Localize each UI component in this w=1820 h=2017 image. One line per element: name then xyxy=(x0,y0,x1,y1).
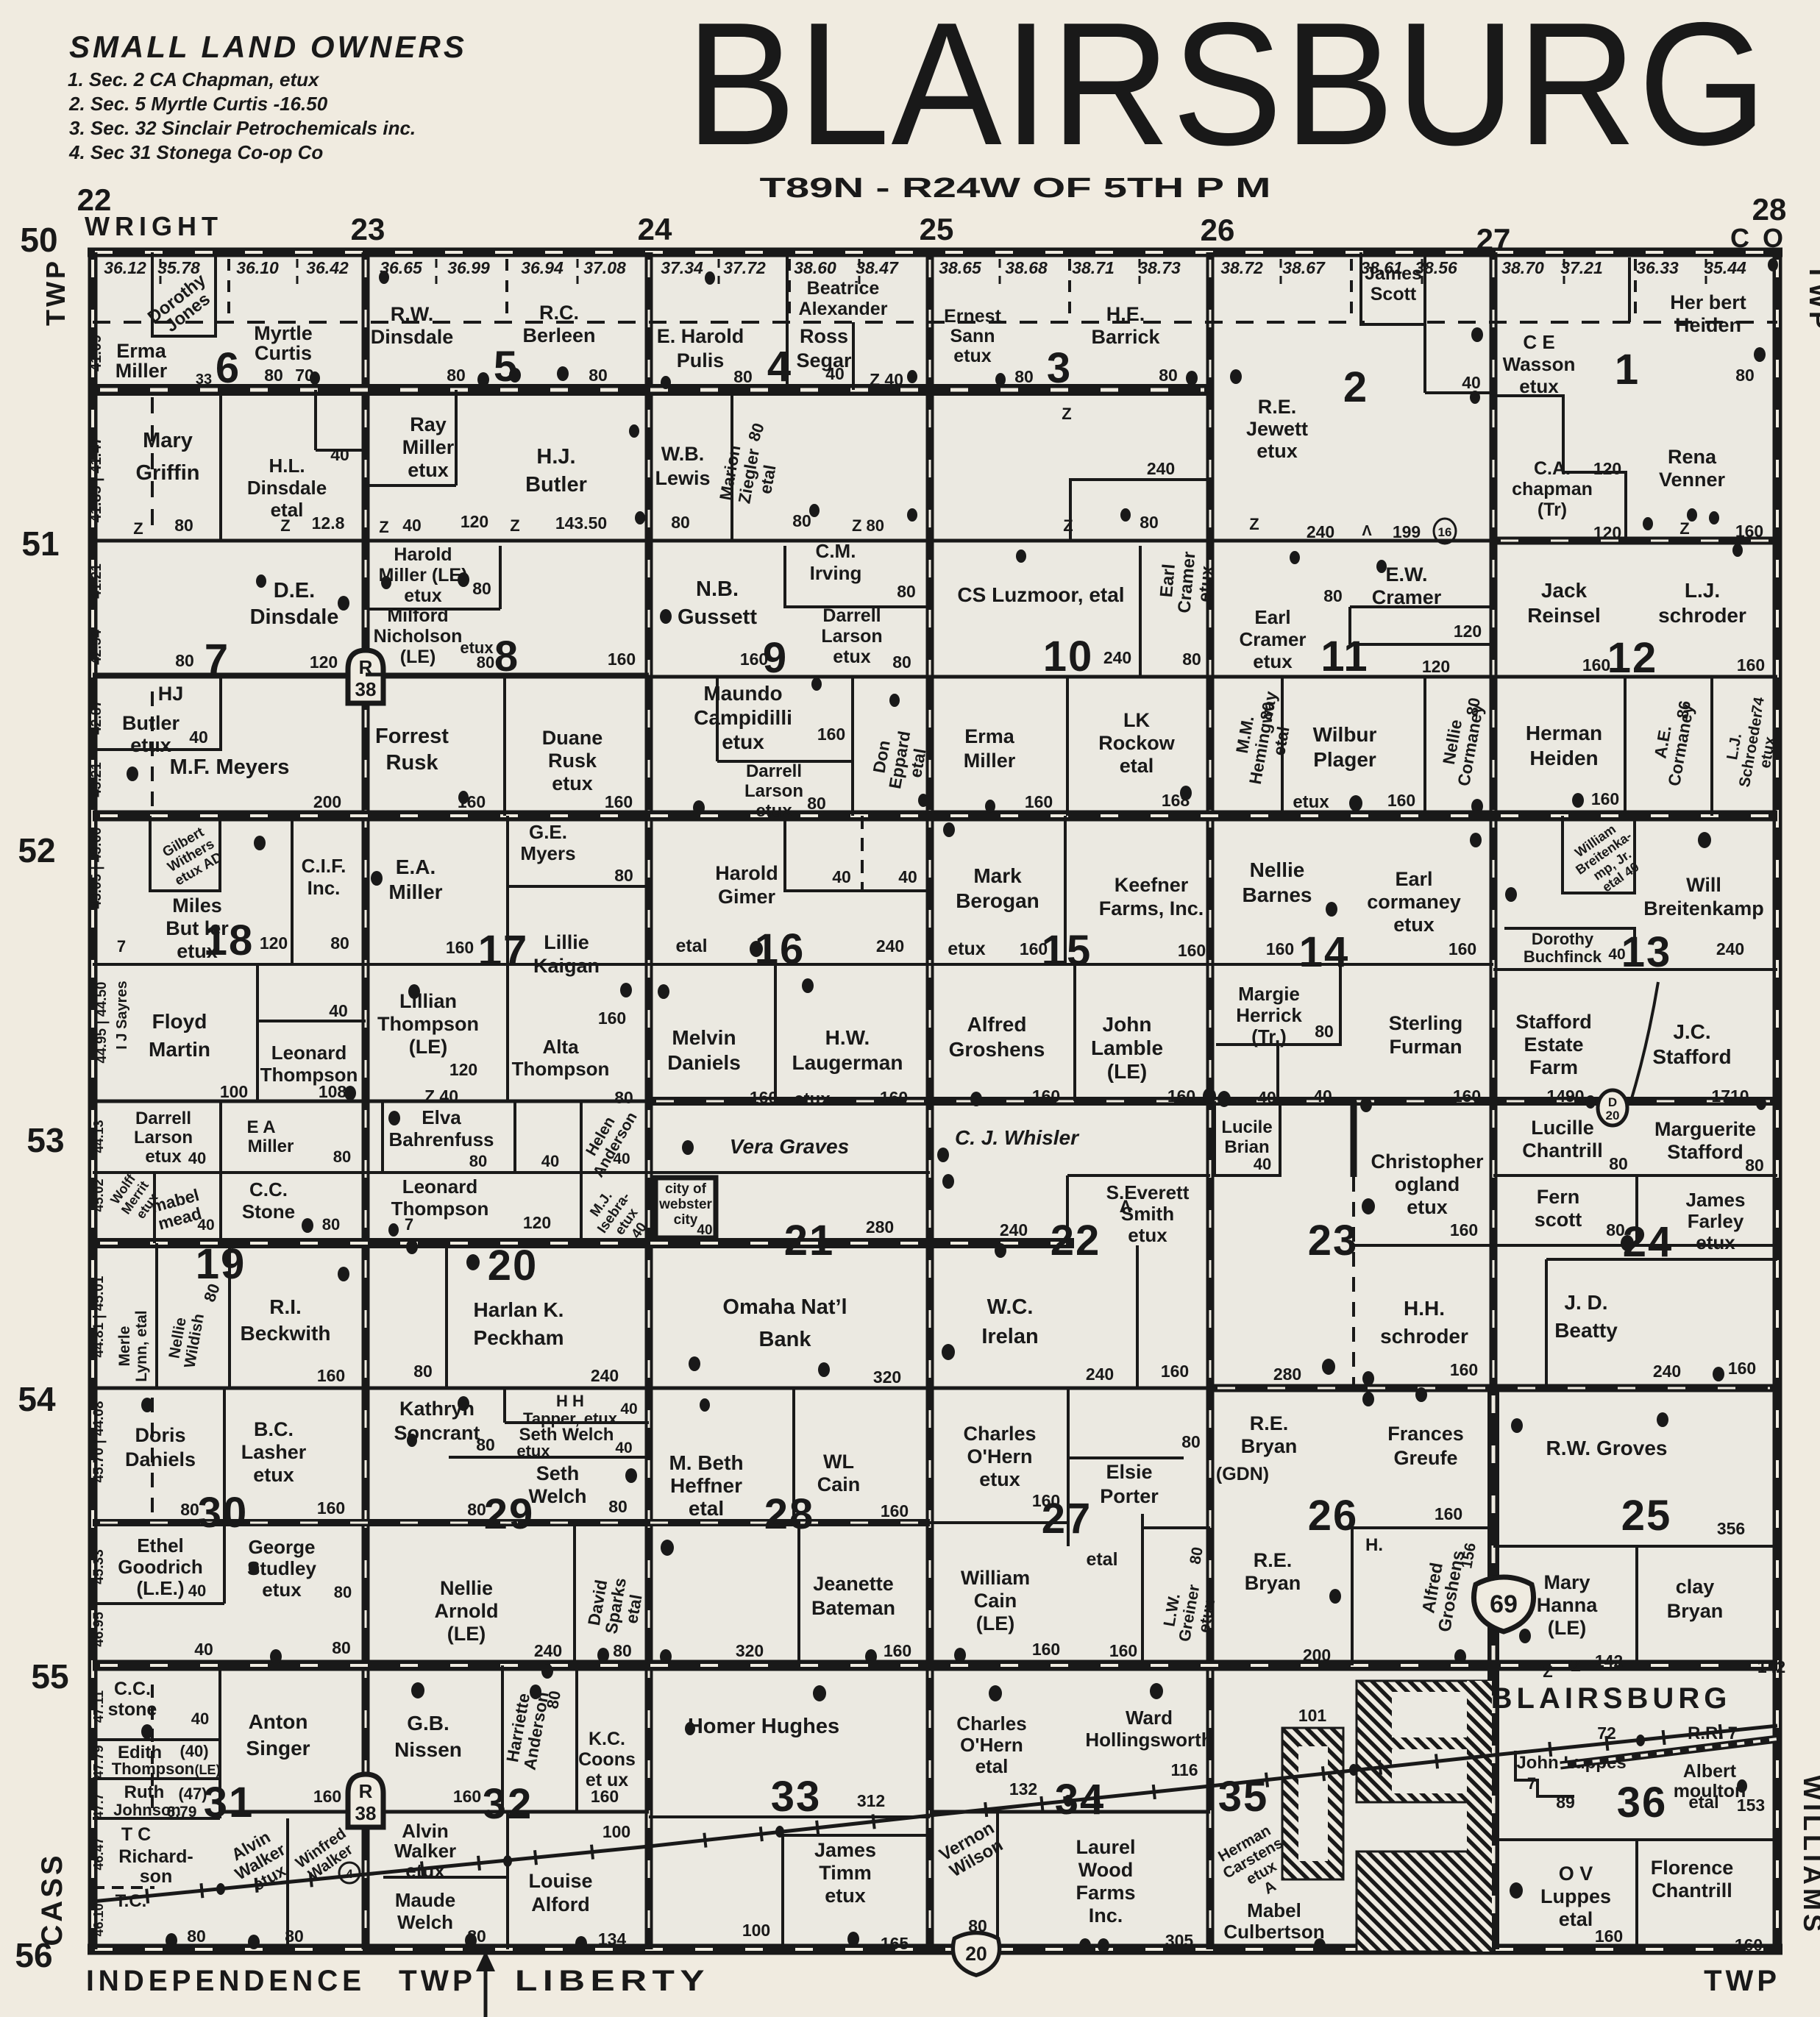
svg-text:Irving: Irving xyxy=(810,562,862,584)
svg-text:80: 80 xyxy=(1323,586,1343,605)
svg-text:47.11: 47.11 xyxy=(91,1690,106,1723)
svg-text:R.E.: R.E. xyxy=(1258,396,1297,418)
svg-text:38.65: 38.65 xyxy=(939,258,982,277)
svg-text:Nicholson: Nicholson xyxy=(374,626,463,647)
svg-text:etal: etal xyxy=(689,1497,724,1520)
svg-text:240: 240 xyxy=(1147,459,1175,478)
svg-text:Furman: Furman xyxy=(1389,1036,1462,1058)
svg-text:52: 52 xyxy=(18,831,55,869)
svg-text:160: 160 xyxy=(1737,655,1765,675)
svg-text:Dinsdale: Dinsdale xyxy=(247,477,327,499)
svg-text:160: 160 xyxy=(880,1088,908,1107)
svg-text:R.E.: R.E. xyxy=(1250,1412,1289,1434)
svg-text:Maude: Maude xyxy=(395,1889,455,1911)
svg-text:142: 142 xyxy=(1757,1657,1785,1676)
svg-text:etux: etux xyxy=(408,459,449,481)
svg-text:38.70: 38.70 xyxy=(1501,258,1544,277)
svg-text:etal: etal xyxy=(1086,1549,1117,1570)
svg-text:160: 160 xyxy=(1178,941,1206,960)
svg-text:etux: etux xyxy=(404,586,442,606)
svg-text:80: 80 xyxy=(1609,1154,1628,1173)
svg-text:INDEPENDENCE: INDEPENDENCE xyxy=(86,1965,366,1997)
svg-text:Bank: Bank xyxy=(759,1328,812,1351)
svg-text:Cain: Cain xyxy=(817,1473,861,1495)
svg-text:CS Luzmoor, etal: CS Luzmoor, etal xyxy=(957,583,1124,606)
svg-text:Alta: Alta xyxy=(542,1036,579,1058)
svg-text:80: 80 xyxy=(1745,1156,1764,1175)
svg-text:Farm: Farm xyxy=(1529,1056,1578,1078)
svg-text:Floyd: Floyd xyxy=(152,1010,207,1033)
svg-text:Stafford: Stafford xyxy=(1652,1045,1731,1068)
svg-text:C.I.F.: C.I.F. xyxy=(302,855,346,877)
svg-text:42.87: 42.87 xyxy=(89,700,104,735)
svg-text:Irelan: Irelan xyxy=(981,1325,1038,1348)
svg-text:webster: webster xyxy=(658,1197,712,1212)
svg-text:T89N - R24W OF 5TH P: T89N - R24W OF 5TH P M xyxy=(760,173,1271,204)
svg-text:Rena: Rena xyxy=(1668,446,1717,468)
svg-text:29: 29 xyxy=(484,1490,535,1538)
svg-text:1. Sec. 2 CA Chapman, etux: 1. Sec. 2 CA Chapman, etux xyxy=(68,68,320,90)
svg-text:45.70 | 44.08: 45.70 | 44.08 xyxy=(91,1401,107,1483)
svg-text:Miller: Miller xyxy=(964,750,1016,772)
svg-text:Barrick: Barrick xyxy=(1091,326,1160,348)
svg-text:120: 120 xyxy=(461,512,488,531)
svg-text:7: 7 xyxy=(405,1215,413,1234)
svg-text:5: 5 xyxy=(494,343,519,391)
svg-text:schroder: schroder xyxy=(1658,604,1746,627)
svg-text:Harlan K.: Harlan K. xyxy=(474,1298,564,1321)
svg-text:40: 40 xyxy=(898,867,917,886)
svg-text:(GDN): (GDN) xyxy=(1216,1464,1269,1484)
svg-text:41.85 | 41.47: 41.85 | 41.47 xyxy=(88,437,104,523)
svg-text:Her bert: Her bert xyxy=(1670,291,1746,313)
svg-text:etux: etux xyxy=(1519,375,1559,397)
svg-text:3: 3 xyxy=(1047,344,1072,392)
svg-text:38.47: 38.47 xyxy=(856,258,899,277)
svg-text:R.I.: R.I. xyxy=(269,1295,302,1318)
svg-text:55: 55 xyxy=(31,1657,68,1696)
svg-text:160: 160 xyxy=(1435,1504,1462,1523)
svg-text:80: 80 xyxy=(322,1215,340,1234)
svg-text:160: 160 xyxy=(1591,789,1619,808)
svg-text:100: 100 xyxy=(602,1822,630,1841)
svg-text:50: 50 xyxy=(20,221,57,259)
svg-text:Fern: Fern xyxy=(1537,1186,1580,1208)
svg-text:Myrtle: Myrtle xyxy=(254,322,313,344)
svg-text:160: 160 xyxy=(1161,1362,1189,1381)
svg-text:35.44: 35.44 xyxy=(1704,258,1746,277)
svg-text:160: 160 xyxy=(446,938,474,957)
svg-text:James: James xyxy=(1686,1189,1746,1211)
svg-text:1: 1 xyxy=(1615,346,1640,394)
svg-text:R.W.: R.W. xyxy=(391,303,434,325)
svg-text:16: 16 xyxy=(1438,525,1452,539)
svg-text:B.C.: B.C. xyxy=(254,1418,294,1440)
svg-text:280: 280 xyxy=(1273,1365,1301,1384)
svg-text:17: 17 xyxy=(478,927,529,975)
svg-text:80: 80 xyxy=(807,794,826,813)
svg-text:40: 40 xyxy=(188,1149,206,1167)
svg-text:TWP: TWP xyxy=(1704,1965,1780,1997)
svg-text:Harold: Harold xyxy=(394,544,452,565)
svg-text:Z: Z xyxy=(1249,515,1259,533)
svg-text:SMALL LAND OWNERS: SMALL LAND OWNERS xyxy=(69,29,467,64)
svg-text:80: 80 xyxy=(1315,1022,1334,1041)
svg-text:Stafford: Stafford xyxy=(1667,1141,1743,1163)
svg-text:44.95 | 44.50: 44.95 | 44.50 xyxy=(94,982,110,1064)
svg-text:Bryan: Bryan xyxy=(1667,1600,1724,1622)
svg-text:Heffner: Heffner xyxy=(670,1474,742,1497)
svg-text:HJ: HJ xyxy=(158,683,184,705)
svg-text:Walker: Walker xyxy=(394,1840,456,1862)
svg-text:Estate: Estate xyxy=(1524,1034,1583,1056)
svg-text:Lynn, etal: Lynn, etal xyxy=(133,1310,150,1381)
svg-text:Lillie: Lillie xyxy=(544,931,589,953)
svg-text:Merle: Merle xyxy=(116,1326,133,1367)
svg-text:36.94: 36.94 xyxy=(521,258,564,277)
svg-text:E. Harold: E. Harold xyxy=(657,325,744,347)
svg-text:80: 80 xyxy=(543,1689,564,1710)
svg-text:40: 40 xyxy=(832,867,851,886)
svg-text:Scott: Scott xyxy=(1371,284,1417,305)
svg-text:H.L.: H.L. xyxy=(269,455,305,477)
svg-text:89: 89 xyxy=(1556,1793,1575,1812)
svg-text:2. Sec. 5 Myrtle Curtis -16.5: 2. Sec. 5 Myrtle Curtis -16.50 xyxy=(68,93,328,115)
svg-text:Lucile: Lucile xyxy=(1221,1117,1272,1137)
svg-text:Earl: Earl xyxy=(1395,868,1432,890)
svg-text:37.72: 37.72 xyxy=(723,258,766,277)
svg-text:Wasson: Wasson xyxy=(1503,353,1576,375)
svg-text:Z: Z xyxy=(1679,519,1689,538)
svg-text:Berleen: Berleen xyxy=(522,324,595,346)
svg-text:Marguerite: Marguerite xyxy=(1654,1118,1756,1140)
svg-text:160: 160 xyxy=(1167,1086,1195,1106)
svg-text:41.09: 41.09 xyxy=(88,335,104,371)
svg-text:40: 40 xyxy=(541,1152,559,1170)
svg-text:40: 40 xyxy=(191,1710,209,1728)
svg-text:108: 108 xyxy=(319,1082,347,1101)
svg-text:Breitenkamp: Breitenkamp xyxy=(1643,897,1764,919)
svg-text:C.A.: C.A. xyxy=(1534,458,1571,479)
svg-text:H.: H. xyxy=(1365,1535,1383,1555)
svg-text:36.10: 36.10 xyxy=(236,258,279,277)
svg-text:scott: scott xyxy=(1535,1209,1582,1231)
svg-text:etux: etux xyxy=(948,939,986,959)
svg-text:200: 200 xyxy=(1303,1646,1331,1665)
svg-text:24: 24 xyxy=(638,212,672,246)
svg-text:80: 80 xyxy=(1462,696,1484,716)
svg-text:Bahrenfuss: Bahrenfuss xyxy=(388,1128,494,1150)
svg-text:80: 80 xyxy=(476,1435,495,1454)
svg-text:Sterling: Sterling xyxy=(1389,1012,1463,1034)
svg-text:etux: etux xyxy=(979,1468,1020,1490)
svg-text:Harold: Harold xyxy=(715,862,778,884)
svg-text:36.12: 36.12 xyxy=(104,258,146,277)
svg-text:Heiden: Heiden xyxy=(1675,314,1741,336)
svg-text:25: 25 xyxy=(920,212,954,246)
svg-text:Wilbur: Wilbur xyxy=(1313,723,1377,746)
svg-text:80: 80 xyxy=(1181,1432,1201,1451)
svg-text:19: 19 xyxy=(196,1240,246,1288)
svg-text:4. Sec 31 Stonega Co-op Co: 4. Sec 31 Stonega Co-op Co xyxy=(68,141,323,163)
svg-text:Farms: Farms xyxy=(1076,1882,1135,1904)
svg-text:120: 120 xyxy=(1422,657,1450,676)
svg-text:160: 160 xyxy=(1595,1927,1623,1946)
svg-text:Inc.: Inc. xyxy=(1089,1904,1123,1927)
svg-text:160: 160 xyxy=(881,1501,909,1520)
svg-text:240: 240 xyxy=(591,1366,619,1385)
svg-text:80: 80 xyxy=(175,651,194,670)
svg-text:80: 80 xyxy=(469,1152,487,1170)
svg-text:Groshens: Groshens xyxy=(949,1038,1045,1061)
svg-text:BLAIRSBURG: BLAIRSBURG xyxy=(686,0,1769,182)
svg-text:city of: city of xyxy=(665,1181,707,1197)
svg-text:160: 160 xyxy=(1735,1935,1763,1954)
svg-text:etux: etux xyxy=(552,772,593,794)
svg-text:Jack: Jack xyxy=(1541,579,1588,602)
svg-text:116: 116 xyxy=(1170,1760,1198,1779)
svg-text:40: 40 xyxy=(620,1401,637,1417)
svg-text:160: 160 xyxy=(884,1641,911,1660)
svg-text:N.B.: N.B. xyxy=(696,577,739,601)
svg-text:80: 80 xyxy=(477,653,494,672)
svg-text:etal: etal xyxy=(1120,755,1154,777)
svg-text:I J Sayres: I J Sayres xyxy=(114,981,130,1049)
svg-text:40: 40 xyxy=(189,728,208,747)
svg-text:Miller: Miller xyxy=(248,1136,294,1156)
svg-text:Porter: Porter xyxy=(1100,1485,1159,1507)
svg-text:80: 80 xyxy=(1256,700,1278,721)
svg-text:Ethel: Ethel xyxy=(137,1534,184,1557)
svg-text:120: 120 xyxy=(1454,622,1482,641)
svg-text:chapman: chapman xyxy=(1512,479,1593,499)
svg-text:160: 160 xyxy=(1728,1359,1756,1378)
svg-text:27: 27 xyxy=(1042,1495,1092,1543)
svg-text:Thompson: Thompson xyxy=(377,1013,479,1035)
svg-text:160: 160 xyxy=(1109,1641,1137,1660)
svg-text:C E: C E xyxy=(1523,331,1554,353)
svg-text:Culbertson: Culbertson xyxy=(1223,1921,1324,1943)
svg-text:20: 20 xyxy=(1606,1109,1620,1123)
svg-text:Larson: Larson xyxy=(134,1128,193,1148)
svg-text:Lillian: Lillian xyxy=(399,990,457,1012)
svg-text:312: 312 xyxy=(857,1791,885,1810)
svg-text:Anton: Anton xyxy=(249,1710,308,1733)
svg-text:160: 160 xyxy=(1735,522,1763,541)
svg-text:38.72: 38.72 xyxy=(1220,258,1263,277)
svg-text:Miles: Miles xyxy=(172,894,222,917)
svg-text:1710: 1710 xyxy=(1711,1086,1749,1106)
svg-text:schroder: schroder xyxy=(1380,1325,1468,1348)
svg-text:Goodrich: Goodrich xyxy=(118,1556,203,1578)
svg-text:Omaha Natʼl: Omaha Natʼl xyxy=(722,1295,847,1319)
svg-text:36: 36 xyxy=(1617,1779,1668,1826)
svg-text:(L.E.): (L.E.) xyxy=(137,1577,185,1599)
svg-text:Bateman: Bateman xyxy=(811,1597,895,1619)
svg-text:160: 160 xyxy=(317,1366,345,1385)
svg-text:80: 80 xyxy=(413,1362,433,1381)
svg-text:Nellie: Nellie xyxy=(440,1577,493,1599)
svg-text:(Tr): (Tr) xyxy=(1538,499,1567,520)
svg-text:Luppes: Luppes xyxy=(1540,1885,1611,1907)
svg-text:Barnes: Barnes xyxy=(1243,883,1312,906)
svg-text:36.99: 36.99 xyxy=(447,258,490,277)
svg-text:Darrell: Darrell xyxy=(822,605,881,626)
svg-text:Farley: Farley xyxy=(1688,1210,1744,1232)
svg-text:45.33: 45.33 xyxy=(91,1549,107,1584)
svg-text:Earl: Earl xyxy=(1254,606,1290,628)
svg-text:H H: H H xyxy=(556,1392,584,1410)
svg-text:Chantrill: Chantrill xyxy=(1652,1879,1732,1902)
svg-text:240: 240 xyxy=(1103,648,1131,667)
svg-text:40: 40 xyxy=(613,1150,630,1167)
svg-text:40: 40 xyxy=(1254,1155,1271,1173)
svg-text:Reinsel: Reinsel xyxy=(1527,604,1601,627)
svg-text:38.73: 38.73 xyxy=(1138,258,1181,277)
svg-text:100: 100 xyxy=(220,1082,248,1101)
svg-text:165: 165 xyxy=(881,1934,909,1953)
svg-text:305: 305 xyxy=(1165,1931,1194,1950)
svg-text:38: 38 xyxy=(355,678,377,700)
svg-text:Mark: Mark xyxy=(973,864,1022,887)
svg-text:80: 80 xyxy=(671,513,690,532)
svg-text:etux: etux xyxy=(145,1147,182,1167)
svg-text:Plager: Plager xyxy=(1313,748,1376,771)
svg-text:356: 356 xyxy=(1717,1519,1745,1538)
svg-text:40: 40 xyxy=(197,1217,214,1234)
svg-text:etux: etux xyxy=(253,1464,294,1486)
svg-text:Λ: Λ xyxy=(1120,1197,1131,1217)
svg-text:M.F. Meyers: M.F. Meyers xyxy=(170,755,290,779)
svg-text:stone: stone xyxy=(108,1699,157,1720)
svg-text:Jeanette: Jeanette xyxy=(813,1573,894,1595)
svg-text:120: 120 xyxy=(449,1060,477,1079)
svg-text:Z: Z xyxy=(1543,1662,1552,1681)
svg-text:54: 54 xyxy=(18,1380,56,1418)
svg-text:clay: clay xyxy=(1676,1576,1715,1598)
svg-text:80: 80 xyxy=(892,652,911,672)
svg-text:Lucille: Lucille xyxy=(1531,1117,1594,1139)
svg-text:Gussett: Gussett xyxy=(678,605,757,629)
svg-text:Darrell: Darrell xyxy=(746,761,802,781)
svg-text:George: George xyxy=(248,1536,315,1558)
svg-text:160: 160 xyxy=(1032,1086,1060,1106)
svg-text:Stafford: Stafford xyxy=(1515,1011,1592,1033)
svg-text:38.60: 38.60 xyxy=(794,258,836,277)
svg-text:40: 40 xyxy=(188,1582,206,1600)
svg-text:Larson: Larson xyxy=(821,626,882,647)
svg-text:80: 80 xyxy=(1187,1545,1206,1565)
svg-text:Myers: Myers xyxy=(520,842,575,864)
svg-text:36.42: 36.42 xyxy=(306,258,349,277)
svg-text:Will: Will xyxy=(1686,874,1721,896)
svg-text:80: 80 xyxy=(472,579,491,598)
svg-text:James: James xyxy=(814,1839,876,1861)
svg-text:cormaney: cormaney xyxy=(1367,891,1461,913)
svg-text:Laurel: Laurel xyxy=(1076,1836,1135,1858)
svg-text:240: 240 xyxy=(876,936,904,956)
svg-text:160: 160 xyxy=(1450,1360,1478,1379)
svg-text:40: 40 xyxy=(825,364,845,383)
svg-text:Dinsdale: Dinsdale xyxy=(371,326,454,348)
svg-text:120: 120 xyxy=(523,1213,551,1232)
svg-text:13: 13 xyxy=(1621,928,1672,976)
svg-text:Z 80: Z 80 xyxy=(852,516,884,535)
svg-text:7: 7 xyxy=(205,636,230,683)
svg-text:Coons: Coons xyxy=(578,1749,636,1770)
svg-text:40: 40 xyxy=(615,1440,632,1456)
svg-text:Leonard: Leonard xyxy=(271,1042,347,1064)
svg-text:Jewett: Jewett xyxy=(1246,418,1308,440)
svg-text:160: 160 xyxy=(598,1008,626,1028)
svg-text:Farms, Inc.: Farms, Inc. xyxy=(1099,897,1204,919)
svg-text:Buchfinck: Buchfinck xyxy=(1524,947,1602,966)
svg-text:Curtis: Curtis xyxy=(255,342,312,364)
svg-text:160: 160 xyxy=(1448,939,1476,958)
svg-text:Martin: Martin xyxy=(149,1038,210,1061)
svg-text:(LE): (LE) xyxy=(195,1762,221,1777)
svg-text:C.C.: C.C. xyxy=(114,1679,151,1699)
svg-text:Ray: Ray xyxy=(410,413,447,435)
svg-text:C.M.: C.M. xyxy=(816,540,856,562)
svg-text:80: 80 xyxy=(447,366,466,385)
svg-text:240: 240 xyxy=(1000,1220,1028,1239)
svg-text:240: 240 xyxy=(1653,1362,1681,1381)
svg-text:240: 240 xyxy=(1716,939,1744,958)
svg-text:86: 86 xyxy=(1673,699,1694,719)
svg-text:etux: etux xyxy=(1253,650,1293,672)
svg-text:city: city xyxy=(674,1212,698,1228)
svg-text:WRIGHT: WRIGHT xyxy=(85,211,223,241)
svg-text:46.95: 46.95 xyxy=(91,1612,107,1647)
svg-text:Beckwith: Beckwith xyxy=(241,1322,331,1345)
svg-text:Laugerman: Laugerman xyxy=(792,1051,903,1074)
svg-text:Lamble: Lamble xyxy=(1091,1036,1163,1059)
svg-text:Herrick: Herrick xyxy=(1236,1004,1302,1026)
svg-text:199: 199 xyxy=(1393,522,1421,541)
svg-text:Elva: Elva xyxy=(422,1106,461,1128)
svg-text:Welch: Welch xyxy=(397,1911,453,1933)
svg-text:D.E.: D.E. xyxy=(274,579,315,602)
svg-text:Arnold: Arnold xyxy=(435,1600,499,1622)
svg-text:80: 80 xyxy=(613,1641,632,1660)
svg-text:23: 23 xyxy=(351,212,385,246)
svg-text:45.02: 45.02 xyxy=(91,1178,106,1212)
svg-text:80: 80 xyxy=(285,1927,304,1946)
svg-text:Sann: Sann xyxy=(950,326,995,346)
svg-text:etux: etux xyxy=(1195,564,1218,602)
svg-text:80: 80 xyxy=(614,1088,633,1107)
svg-text:80: 80 xyxy=(1140,513,1159,532)
svg-text:160: 160 xyxy=(1582,655,1610,675)
svg-text:Larson: Larson xyxy=(744,781,803,801)
svg-text:Nissen: Nissen xyxy=(394,1738,462,1761)
svg-text:Hollingsworth: Hollingsworth xyxy=(1085,1729,1212,1751)
svg-text:Z: Z xyxy=(133,519,143,538)
svg-text:120: 120 xyxy=(1593,459,1621,478)
svg-text:Welch: Welch xyxy=(528,1485,586,1507)
svg-text:200: 200 xyxy=(313,792,341,811)
svg-text:Rockow: Rockow xyxy=(1098,732,1176,754)
svg-text:80: 80 xyxy=(589,366,608,385)
svg-text:37.21: 37.21 xyxy=(1560,258,1603,277)
svg-text:etal: etal xyxy=(1559,1908,1593,1930)
svg-text:42.54: 42.54 xyxy=(89,630,104,665)
svg-text:Singer: Singer xyxy=(246,1737,310,1760)
svg-text:Campidilli: Campidilli xyxy=(694,706,792,729)
svg-text:Ward: Ward xyxy=(1126,1707,1173,1729)
svg-text:40: 40 xyxy=(330,445,349,464)
